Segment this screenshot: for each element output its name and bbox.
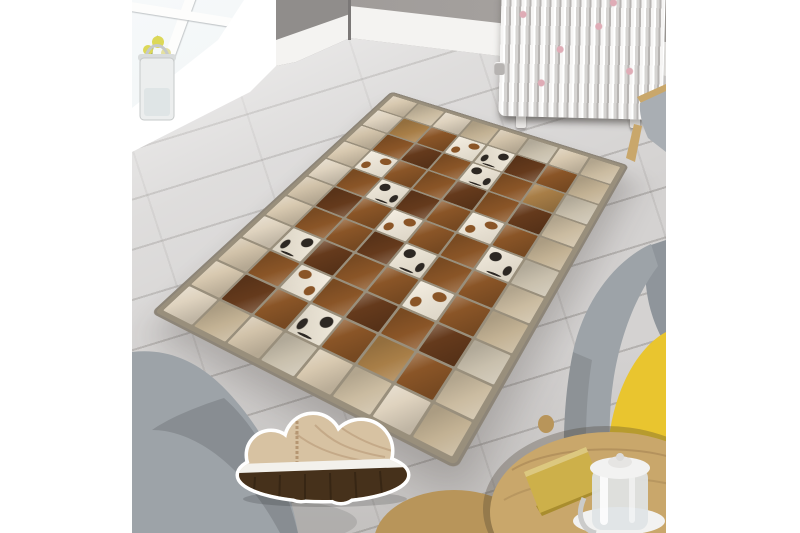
glass-highlight <box>629 475 635 523</box>
lantern-knob <box>616 453 624 461</box>
furniture-layer <box>132 0 666 533</box>
stool <box>626 84 666 162</box>
room-photo <box>132 0 666 533</box>
material-swatch-cloud <box>230 410 427 518</box>
windowsill-lantern <box>138 36 176 120</box>
lantern-glass-inner <box>144 88 170 116</box>
chair-wood-foot <box>538 415 554 433</box>
glass-highlight <box>600 473 608 525</box>
stool-leg <box>626 124 642 162</box>
product-image <box>0 0 800 533</box>
